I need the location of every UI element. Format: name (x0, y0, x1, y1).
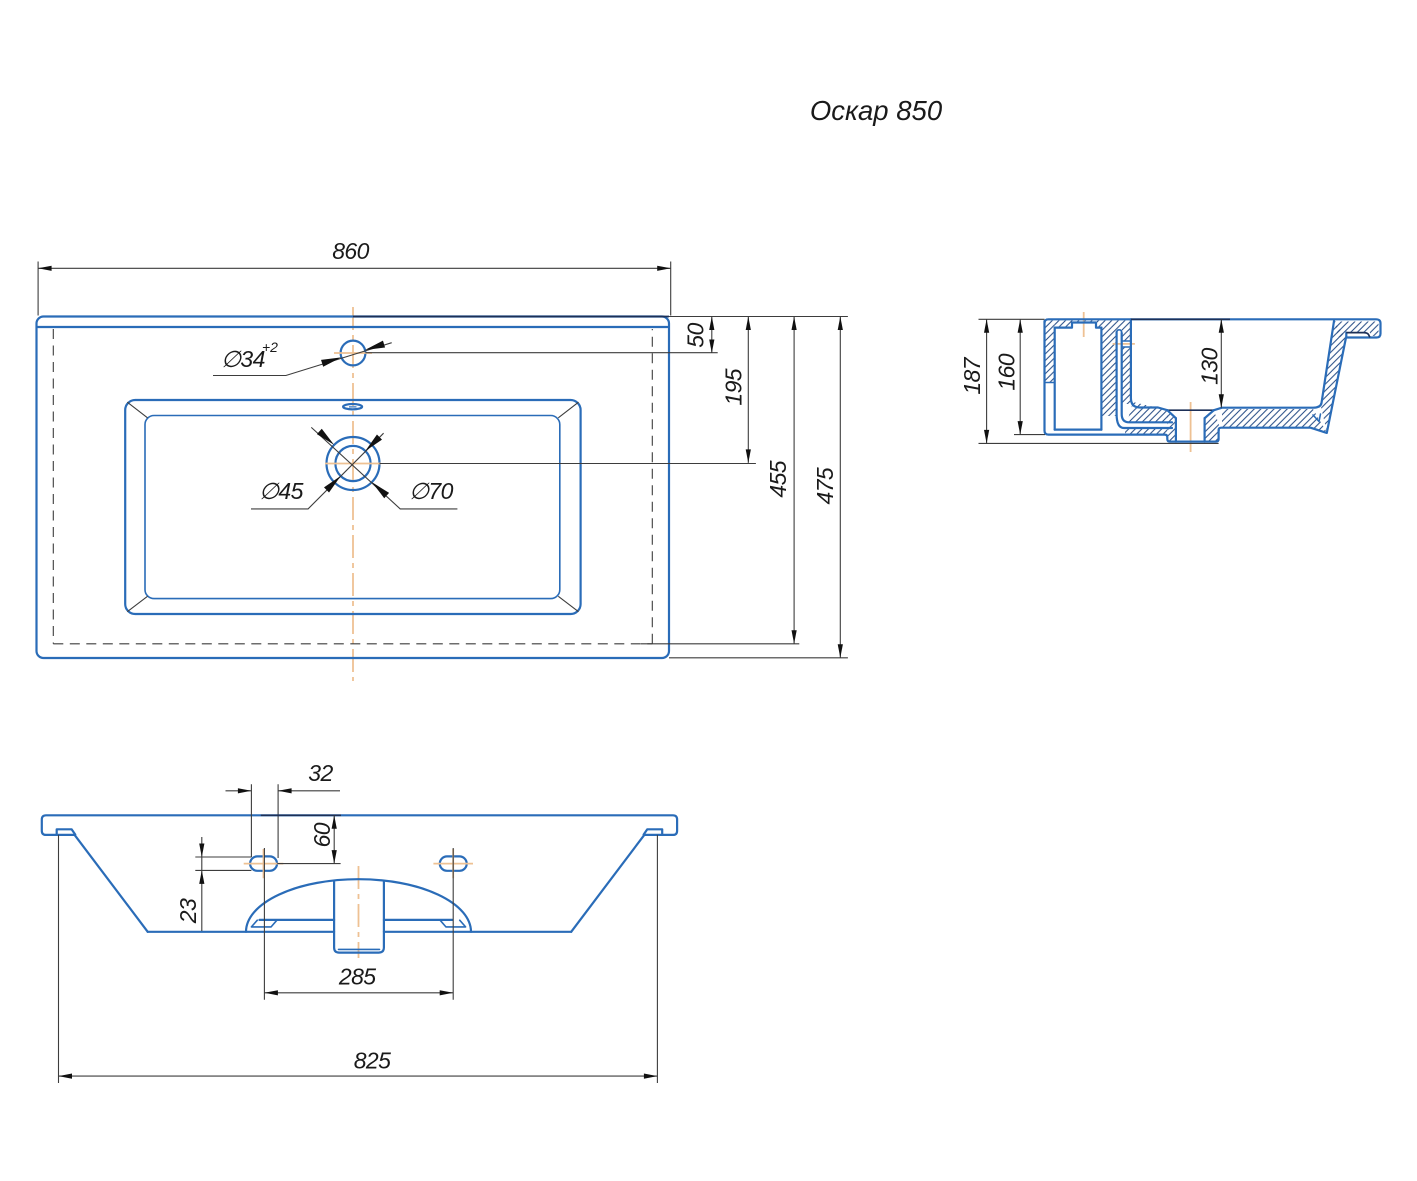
svg-text:187: 187 (959, 356, 985, 394)
svg-text:130: 130 (1197, 348, 1223, 385)
svg-text:285: 285 (338, 964, 376, 990)
svg-text:50: 50 (683, 323, 709, 348)
svg-text:195: 195 (721, 368, 747, 405)
svg-text:475: 475 (812, 467, 838, 504)
svg-text:+2: +2 (262, 339, 278, 355)
svg-text:Оскар 850: Оскар 850 (810, 95, 943, 126)
svg-text:23: 23 (175, 898, 201, 924)
svg-text:860: 860 (332, 238, 369, 264)
svg-text:455: 455 (765, 460, 791, 497)
svg-text:60: 60 (309, 822, 335, 847)
svg-text:∅34: ∅34 (221, 346, 265, 372)
svg-text:∅45: ∅45 (259, 478, 304, 504)
svg-text:825: 825 (354, 1048, 391, 1074)
svg-text:∅70: ∅70 (409, 478, 454, 504)
svg-text:160: 160 (994, 353, 1020, 390)
svg-text:32: 32 (308, 760, 333, 786)
